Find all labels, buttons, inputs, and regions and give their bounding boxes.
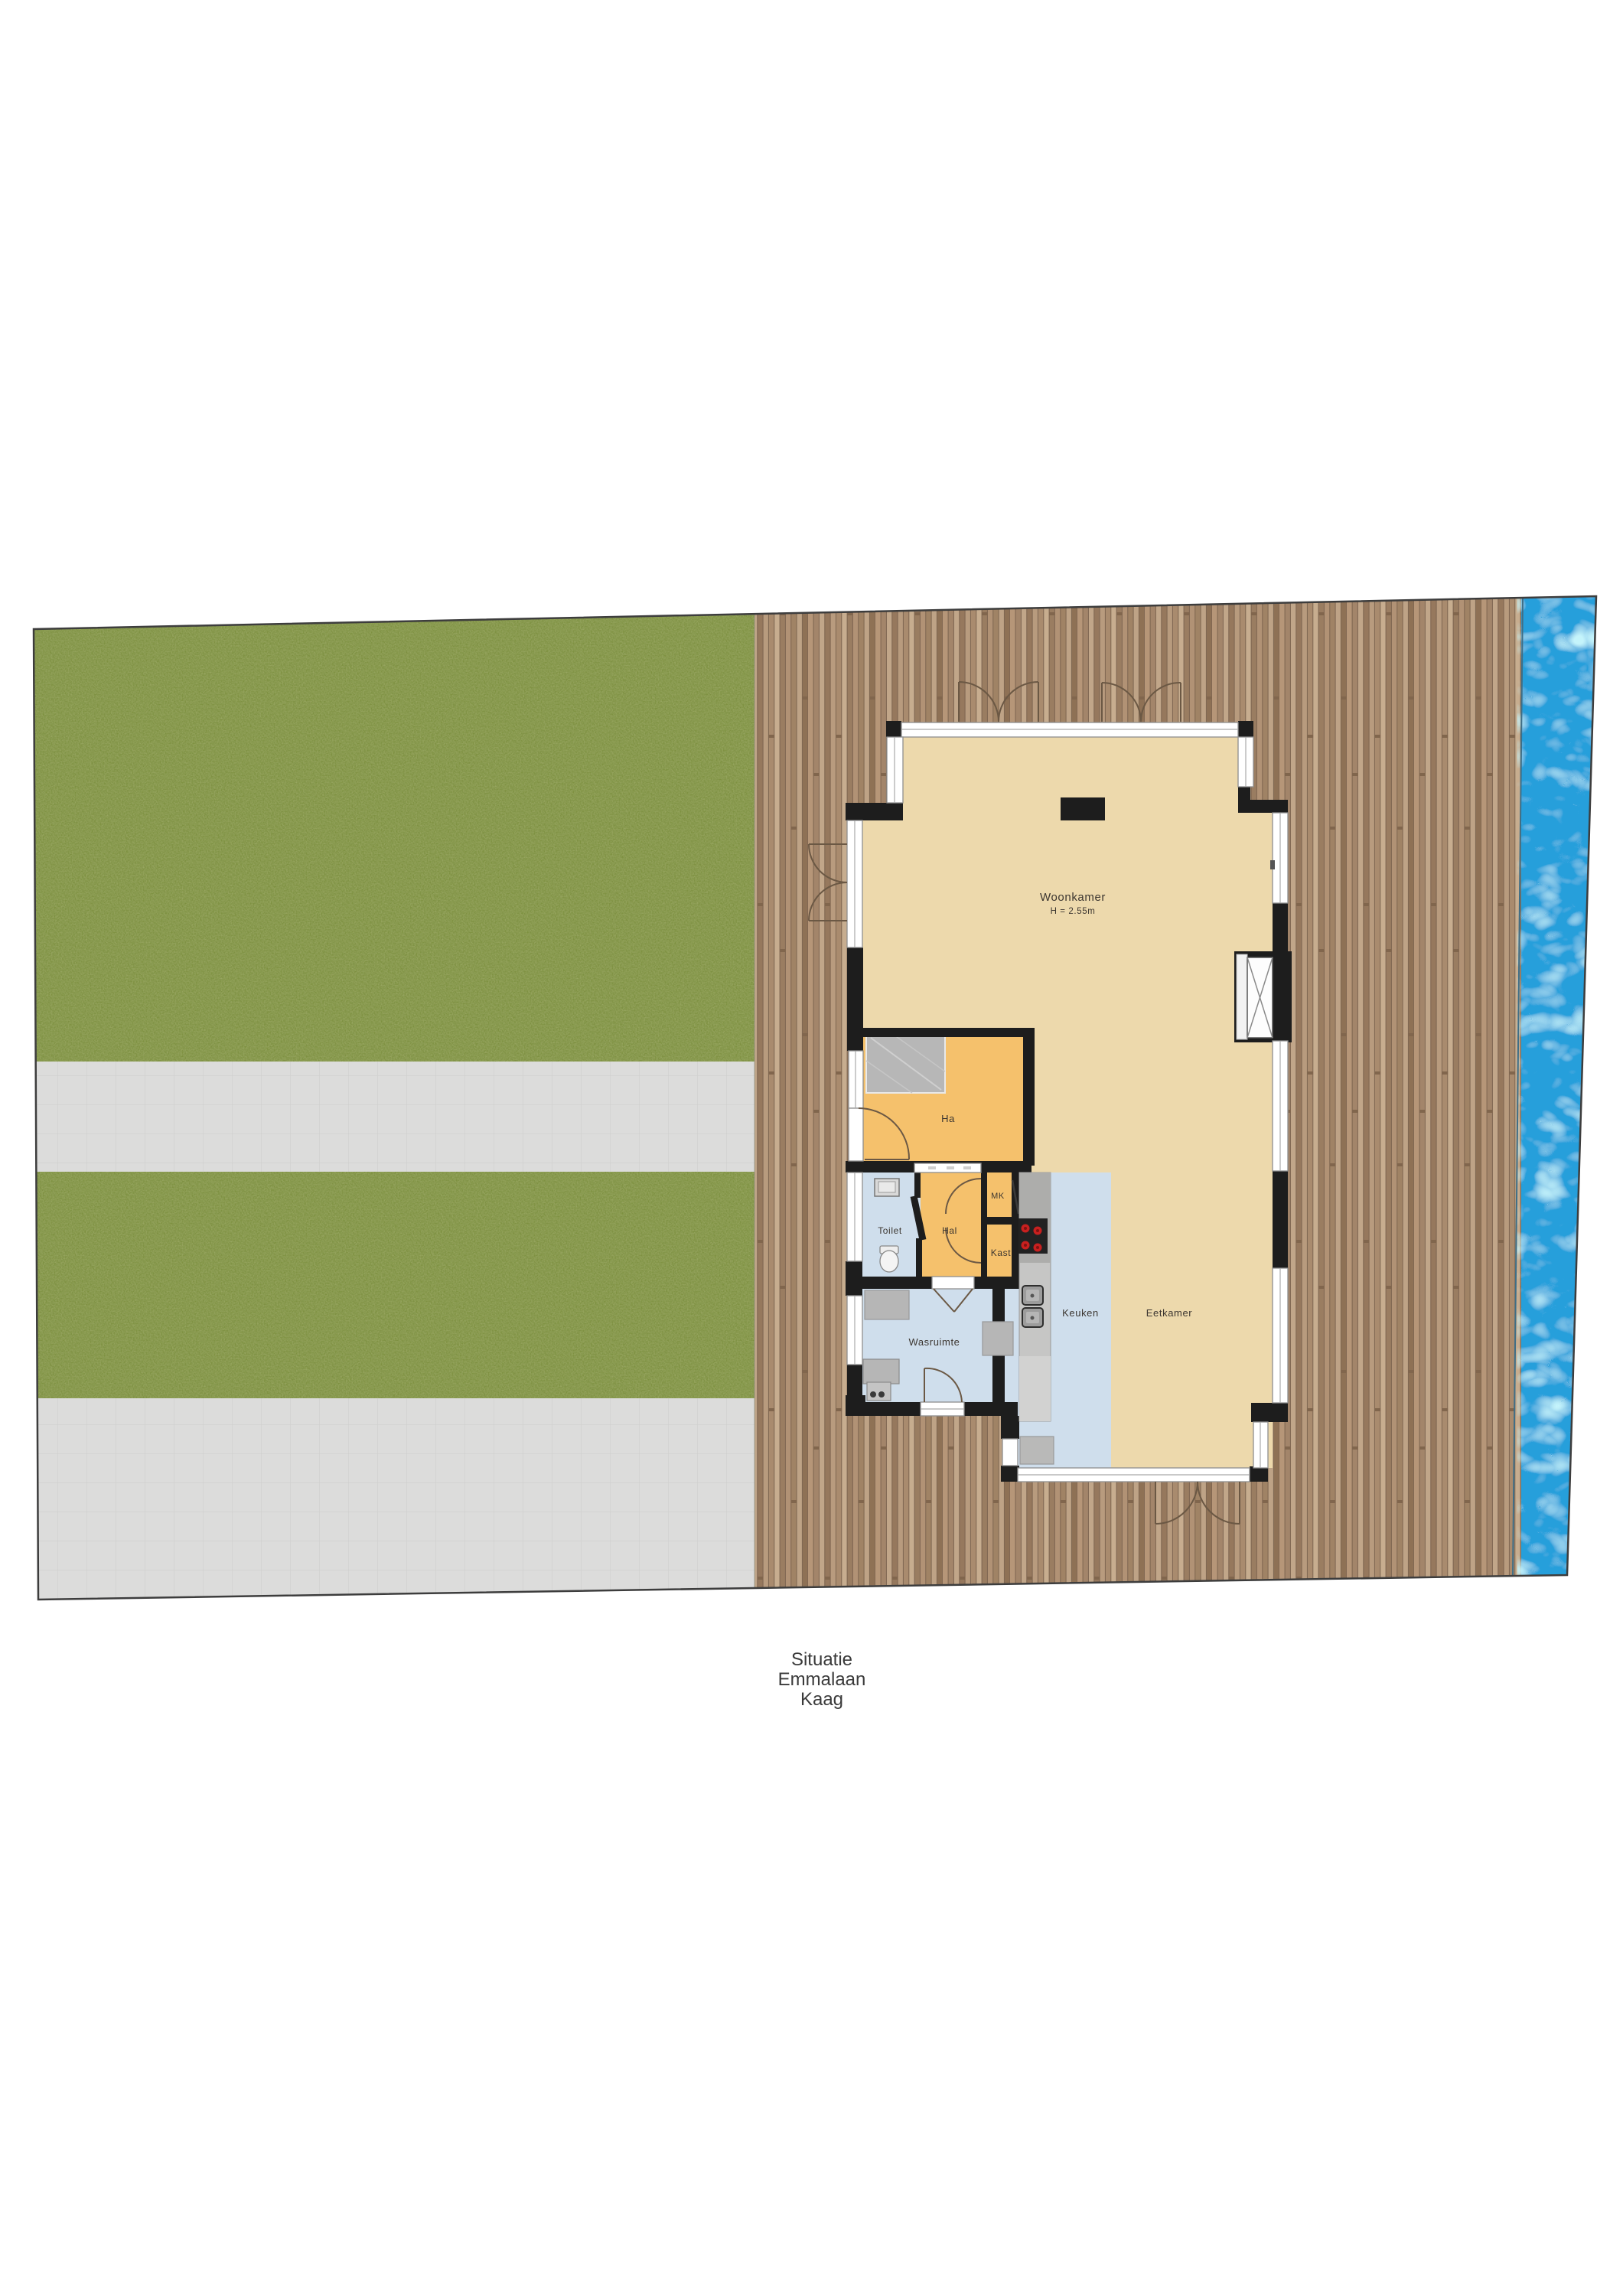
caption-title: Situatie [791, 1649, 852, 1670]
caption: Situatie Emmalaan Kaag [778, 1649, 866, 1710]
label-kast: Kast [991, 1247, 1011, 1258]
laundry-counter [865, 1290, 909, 1319]
chimney-block [1061, 797, 1105, 820]
staircase [866, 1035, 945, 1093]
situation-plan-drawing: Woonkamer H = 2.55m Ha Toilet Hal MK Kas… [0, 0, 1623, 2296]
fireplace-unit [1237, 954, 1273, 1039]
cooktop [1018, 1218, 1048, 1254]
pavement-strip-upper [31, 1062, 756, 1172]
caption-city: Kaag [800, 1689, 843, 1710]
caption-street: Emmalaan [778, 1669, 866, 1690]
label-toilet: Toilet [878, 1225, 902, 1236]
label-keuken: Keuken [1062, 1307, 1099, 1319]
label-eetkamer: Eetkamer [1146, 1307, 1193, 1319]
label-ha: Ha [941, 1113, 955, 1124]
label-mk: MK [991, 1192, 1005, 1201]
toilet-bowl [880, 1246, 898, 1272]
pavement-strip-lower [31, 1398, 756, 1605]
label-hal: Hal [942, 1225, 957, 1236]
label-wasruimte: Wasruimte [908, 1336, 960, 1348]
kitchen-block [1020, 1437, 1054, 1464]
dryer [983, 1322, 1013, 1355]
situation-plan-page: Woonkamer H = 2.55m Ha Toilet Hal MK Kas… [0, 0, 1623, 2296]
label-woonkamer-height: H = 2.55m [1051, 907, 1096, 916]
house-floorplan: Woonkamer H = 2.55m Ha Toilet Hal MK Kas… [809, 682, 1292, 1524]
label-woonkamer: Woonkamer [1040, 891, 1106, 904]
